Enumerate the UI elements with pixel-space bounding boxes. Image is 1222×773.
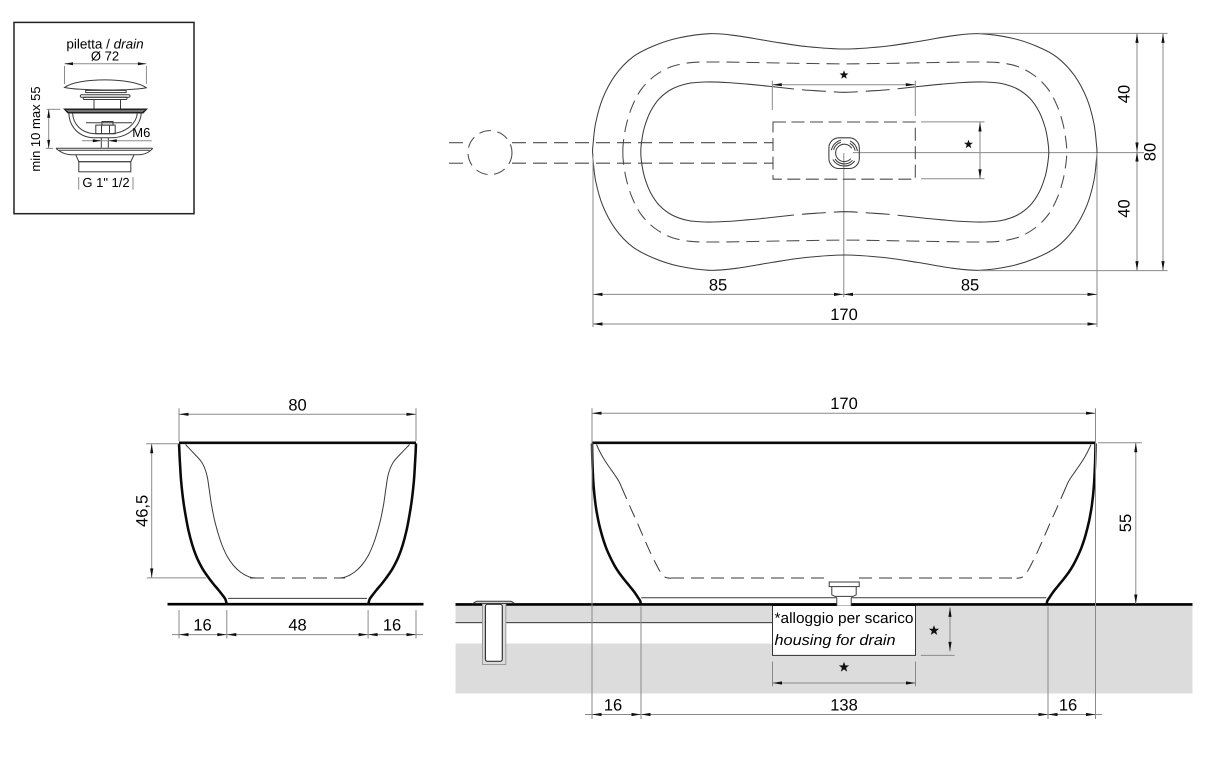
svg-text:170: 170 xyxy=(830,306,858,324)
svg-text:40: 40 xyxy=(1116,199,1134,217)
svg-text:80: 80 xyxy=(1142,143,1160,161)
svg-text:40: 40 xyxy=(1116,85,1134,103)
svg-text:46,5: 46,5 xyxy=(134,495,152,527)
svg-text:G 1" 1/2: G 1" 1/2 xyxy=(82,175,129,190)
svg-text:16: 16 xyxy=(383,617,401,635)
svg-text:48: 48 xyxy=(288,617,306,635)
svg-text:55: 55 xyxy=(1117,514,1135,532)
svg-text:170: 170 xyxy=(830,395,858,413)
svg-text:Ø 72: Ø 72 xyxy=(91,49,119,64)
svg-text:*alloggio per scarico: *alloggio per scarico xyxy=(775,610,914,627)
svg-text:16: 16 xyxy=(1059,697,1077,715)
svg-text:138: 138 xyxy=(830,697,858,715)
svg-text:80: 80 xyxy=(288,396,306,414)
svg-text:16: 16 xyxy=(604,697,622,715)
svg-text:85: 85 xyxy=(709,276,727,294)
svg-text:M6: M6 xyxy=(132,125,150,140)
svg-text:85: 85 xyxy=(961,276,979,294)
svg-text:16: 16 xyxy=(193,617,211,635)
svg-text:housing for drain: housing for drain xyxy=(775,632,896,649)
svg-text:min 10 max 55: min 10 max 55 xyxy=(28,86,43,171)
